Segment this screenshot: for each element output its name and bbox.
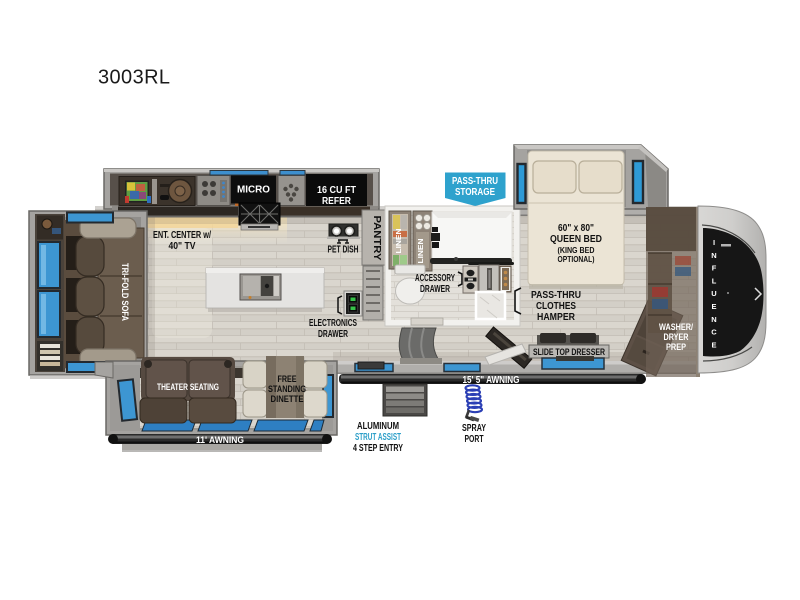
svg-text:F: F — [712, 264, 717, 273]
svg-text:U: U — [711, 289, 716, 298]
svg-text:PORT: PORT — [465, 434, 484, 445]
svg-text:DRAWER: DRAWER — [420, 283, 450, 295]
svg-text:STRUT ASSIST: STRUT ASSIST — [355, 432, 401, 443]
svg-text:PANTRY: PANTRY — [371, 216, 383, 261]
svg-text:THEATER SEATING: THEATER SEATING — [157, 382, 219, 393]
svg-text:DRAWER: DRAWER — [318, 329, 349, 340]
svg-text:L: L — [712, 276, 717, 285]
svg-text:I: I — [713, 238, 715, 247]
svg-text:ELECTRONICS: ELECTRONICS — [309, 318, 357, 329]
svg-text:PASS-THRU: PASS-THRU — [531, 290, 581, 301]
svg-text:SPRAY: SPRAY — [462, 423, 486, 434]
svg-text:N: N — [711, 251, 716, 260]
svg-text:TRI-FOLD SOFA: TRI-FOLD SOFA — [119, 263, 130, 321]
svg-text:N: N — [711, 315, 716, 324]
svg-text:40" TV: 40" TV — [169, 241, 196, 252]
svg-text:ENT. CENTER w/: ENT. CENTER w/ — [153, 230, 211, 241]
svg-text:E: E — [711, 302, 716, 311]
svg-text:CLOTHES: CLOTHES — [536, 301, 576, 312]
svg-text:DINETTE: DINETTE — [271, 394, 304, 405]
svg-text:HAMPER: HAMPER — [537, 312, 576, 323]
svg-text:PREP: PREP — [666, 342, 687, 353]
svg-text:SLIDE TOP DRESSER: SLIDE TOP DRESSER — [533, 347, 605, 357]
svg-text:4 STEP ENTRY: 4 STEP ENTRY — [353, 443, 403, 454]
svg-text:C: C — [711, 328, 717, 337]
svg-text:STORAGE: STORAGE — [455, 187, 495, 198]
svg-text:PASS-THRU: PASS-THRU — [452, 176, 498, 187]
svg-text:QUEEN BED: QUEEN BED — [550, 233, 602, 245]
svg-text:OPTIONAL): OPTIONAL) — [558, 254, 595, 264]
svg-text:16 CU FT: 16 CU FT — [317, 185, 356, 196]
svg-text:3003RL: 3003RL — [98, 67, 170, 89]
svg-text:MICRO: MICRO — [237, 184, 270, 196]
svg-text:LINEN: LINEN — [418, 239, 425, 264]
svg-text:PET DISH: PET DISH — [328, 245, 359, 256]
svg-text:E: E — [711, 340, 716, 349]
svg-text:LINEN: LINEN — [396, 229, 403, 254]
svg-text:REFER: REFER — [322, 196, 352, 207]
svg-text:ALUMINUM: ALUMINUM — [357, 421, 399, 432]
